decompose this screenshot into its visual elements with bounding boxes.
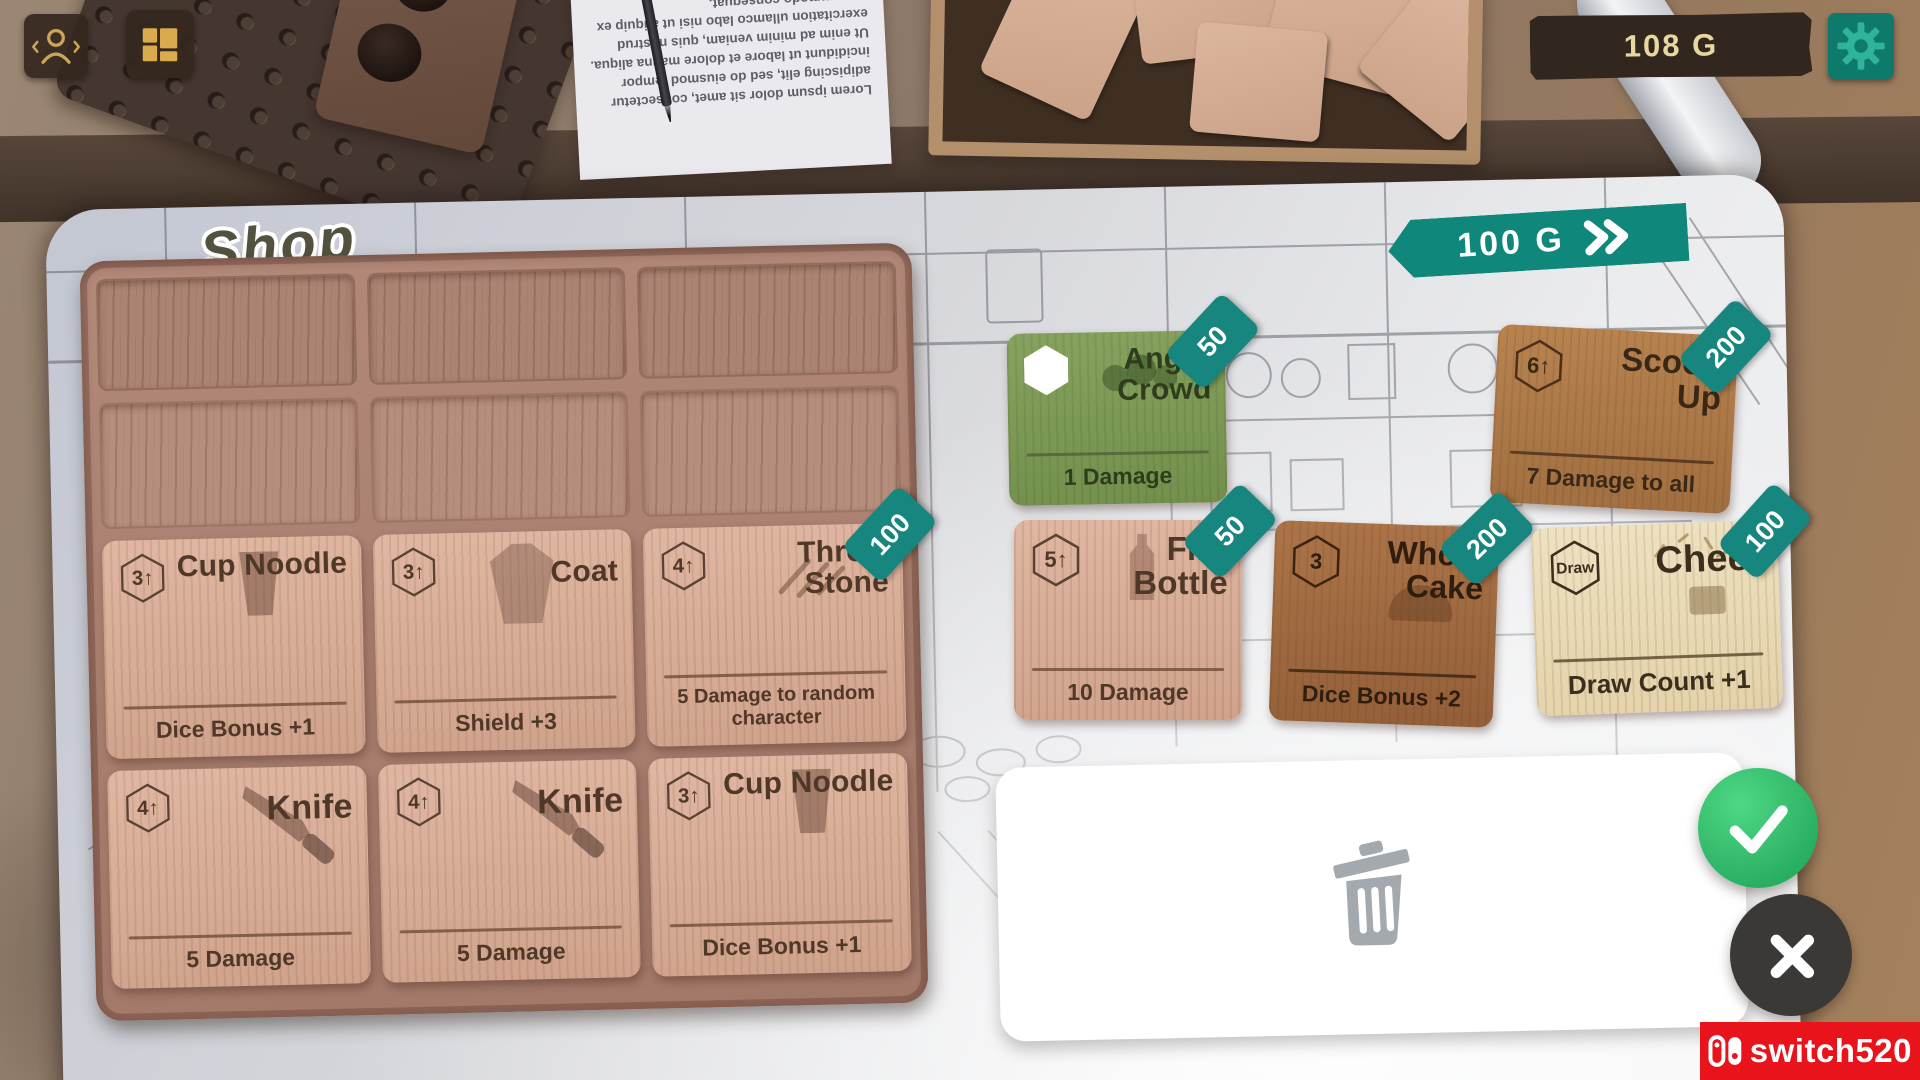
svg-text:3↑: 3↑ xyxy=(402,561,424,583)
cup-icon xyxy=(1689,586,1726,615)
empty-slot[interactable] xyxy=(640,385,901,517)
wood-tile xyxy=(978,0,1150,122)
card-effect: 1 Damage xyxy=(1023,461,1214,497)
trash-icon xyxy=(1321,837,1423,957)
gear-icon xyxy=(1834,19,1888,73)
dice-requirement-badge: 6↑ xyxy=(1509,337,1568,396)
cart-total: 100 G xyxy=(1442,220,1566,266)
card-effect: 7 Damage to all xyxy=(1504,461,1717,505)
divider xyxy=(1027,450,1209,456)
card-knife[interactable]: 4↑ Knife 5 Damage xyxy=(378,759,642,983)
switch-logo-icon xyxy=(1708,1030,1744,1072)
shop-card-fire-bottle[interactable]: 50 5↑ Fire Bottle 10 Damage xyxy=(1014,520,1242,720)
svg-text:4↑: 4↑ xyxy=(673,555,695,577)
shop-card-angry-crowd[interactable]: 50 Angry Crowd 1 Damage xyxy=(1007,330,1228,506)
card-title: Coat xyxy=(447,541,619,590)
svg-text:3↑: 3↑ xyxy=(132,567,154,589)
game-screen: Lorem ipsum dolor sit amet, consectetur … xyxy=(0,0,1920,1080)
svg-text:3↑: 3↑ xyxy=(678,785,700,807)
card-throw-stone[interactable]: 100 4↑ Throw Stone 5 Damage to random ch… xyxy=(643,523,907,747)
dice-requirement-badge: 3 xyxy=(1287,533,1345,591)
empty-slot[interactable] xyxy=(637,261,898,379)
draw-badge: Draw xyxy=(1545,538,1605,598)
x-icon xyxy=(1751,915,1831,995)
card-cup-noodle[interactable]: 3↑ Cup Noodle Dice Bonus +1 xyxy=(648,753,912,977)
card-effect: 10 Damage xyxy=(1028,679,1228,712)
dice-requirement-badge: 3↑ xyxy=(663,769,716,822)
card-effect: 5 Damage xyxy=(125,942,356,980)
dice-requirement-badge: 4↑ xyxy=(392,775,445,828)
grid-icon xyxy=(137,21,183,67)
empty-slot[interactable] xyxy=(99,397,360,529)
dice-requirement-badge: 3↑ xyxy=(116,552,169,605)
card-effect: Dice Bonus +2 xyxy=(1283,680,1480,720)
shop-card-cheer[interactable]: 100 Draw Cheer Draw Count +1 xyxy=(1531,520,1783,716)
tile-box-prop xyxy=(928,0,1484,165)
svg-text:6↑: 6↑ xyxy=(1526,352,1551,378)
svg-text:3: 3 xyxy=(1310,548,1323,573)
card-effect: Dice Bonus +1 xyxy=(120,713,351,751)
card-effect: Shield +3 xyxy=(390,706,621,744)
cancel-button[interactable] xyxy=(1730,894,1852,1016)
empty-slot[interactable] xyxy=(96,273,357,391)
peg-hole xyxy=(352,17,427,88)
card-title: Knife xyxy=(452,771,624,822)
empty-slot[interactable] xyxy=(366,267,627,385)
card-knife[interactable]: 4↑ Knife 5 Damage xyxy=(107,765,371,989)
double-chevron-icon xyxy=(1580,216,1634,257)
dice-requirement-badge: 5↑ xyxy=(1028,532,1084,588)
gold-amount: 108 G xyxy=(1624,27,1719,64)
card-effect: Dice Bonus +1 xyxy=(666,930,897,968)
character-button[interactable] xyxy=(24,14,88,78)
card-cup-noodle[interactable]: 3↑ Cup Noodle Dice Bonus +1 xyxy=(102,535,366,759)
dice-requirement-badge: 3↑ xyxy=(387,545,440,598)
settings-button[interactable] xyxy=(1828,13,1894,79)
card-coat[interactable]: 3↑ Coat Shield +3 xyxy=(372,529,636,753)
player-tray: 3↑ Cup Noodle Dice Bonus +1 3↑ Coat Shie… xyxy=(79,243,928,1022)
card-effect: 5 Damage xyxy=(396,936,627,974)
divider xyxy=(1032,668,1224,671)
note-paper: Lorem ipsum dolor sit amet, consectetur … xyxy=(570,0,892,180)
discard-dropzone[interactable] xyxy=(995,752,1749,1042)
card-title: Cup Noodle xyxy=(722,765,893,800)
empty-slot[interactable] xyxy=(369,391,630,523)
svg-text:Draw: Draw xyxy=(1556,559,1595,577)
card-effect: Draw Count +1 xyxy=(1550,663,1769,708)
person-icon xyxy=(30,20,82,72)
card-title: Knife xyxy=(181,777,353,828)
peg-hole xyxy=(388,0,456,17)
svg-text:4↑: 4↑ xyxy=(407,791,429,813)
card-effect: 5 Damage to random character xyxy=(661,681,893,738)
shop-card-scoop-up[interactable]: 200 6↑ Scoop Up 7 Damage to all xyxy=(1490,324,1739,514)
dice-requirement-badge: 4↑ xyxy=(121,782,174,835)
shop-card-whole-cake[interactable]: 200 3 Whole Cake Dice Bonus +2 xyxy=(1269,520,1500,728)
watermark-text: switch520 xyxy=(1750,1032,1912,1070)
dice-requirement-badge: 4↑ xyxy=(657,539,710,592)
gold-display: 108 G xyxy=(1530,12,1813,80)
check-icon xyxy=(1715,785,1801,871)
watermark: switch520 xyxy=(1700,1022,1920,1080)
svg-text:5↑: 5↑ xyxy=(1044,547,1067,572)
blank-hex-badge xyxy=(1021,345,1072,396)
collection-button[interactable] xyxy=(126,10,194,78)
wood-tile xyxy=(1189,21,1328,142)
card-title: Cup Noodle xyxy=(176,548,347,583)
confirm-button[interactable] xyxy=(1698,768,1818,888)
svg-text:4↑: 4↑ xyxy=(137,797,159,819)
note-text: Lorem ipsum dolor sit amet, consectetur … xyxy=(587,0,873,113)
